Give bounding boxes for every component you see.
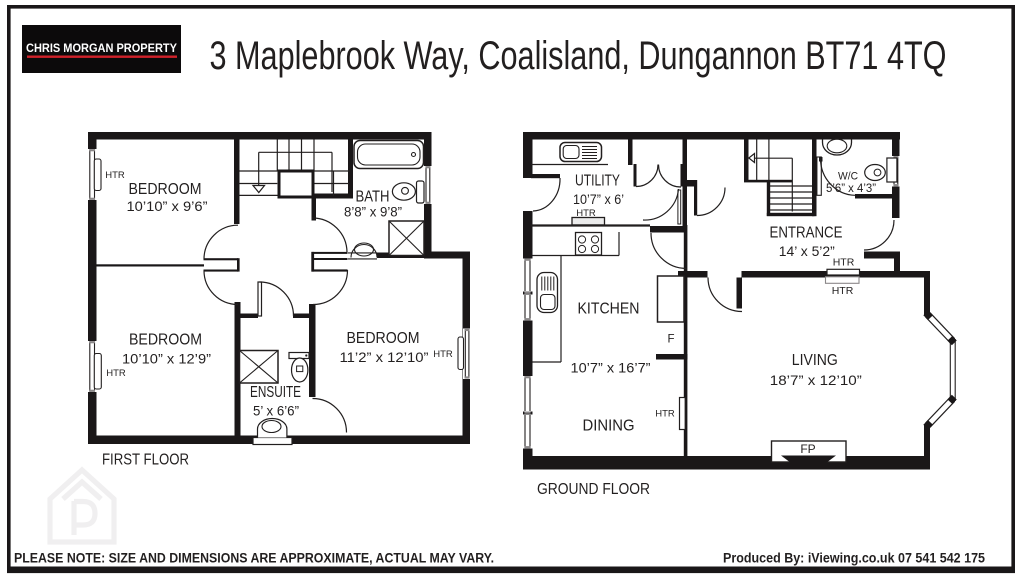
svg-text:10’7” x 16’7”: 10’7” x 16’7” xyxy=(571,360,651,376)
svg-text:HTR: HTR xyxy=(655,409,675,420)
svg-text:10’7” x 6’: 10’7” x 6’ xyxy=(573,191,624,207)
svg-text:DINING: DINING xyxy=(583,418,635,435)
svg-text:UTILITY: UTILITY xyxy=(575,173,620,190)
svg-text:8’8” x 9’8”: 8’8” x 9’8” xyxy=(344,204,402,220)
svg-text:CHRIS MORGAN PROPERTY: CHRIS MORGAN PROPERTY xyxy=(26,41,178,55)
svg-text:11’2” x 12’10”: 11’2” x 12’10” xyxy=(340,349,429,365)
svg-text:HTR: HTR xyxy=(576,208,596,219)
svg-text:W/C: W/C xyxy=(838,171,858,183)
svg-text:FP: FP xyxy=(800,442,815,456)
svg-text:F: F xyxy=(667,334,674,346)
svg-text:ENTRANCE: ENTRANCE xyxy=(770,225,843,242)
svg-text:5’6” x 4’3”: 5’6” x 4’3” xyxy=(826,183,876,195)
svg-text:LIVING: LIVING xyxy=(792,352,838,369)
svg-text:HTR: HTR xyxy=(106,368,126,379)
svg-text:HTR: HTR xyxy=(833,257,855,269)
svg-text:HTR: HTR xyxy=(433,349,453,360)
svg-text:3 Maplebrook Way, Coalisland,: 3 Maplebrook Way, Coalisland, Dungannon … xyxy=(210,34,947,78)
svg-text:18’7” x 12’10”: 18’7” x 12’10” xyxy=(770,372,862,388)
svg-text:ENSUITE: ENSUITE xyxy=(250,384,301,401)
svg-text:HTR: HTR xyxy=(105,170,125,181)
svg-text:PLEASE NOTE: SIZE AND DIMENSIO: PLEASE NOTE: SIZE AND DIMENSIONS ARE APP… xyxy=(14,551,494,566)
svg-text:14’ x 5’2”: 14’ x 5’2” xyxy=(779,243,835,259)
svg-text:10’10” x 9’6”: 10’10” x 9’6” xyxy=(127,198,208,214)
svg-text:BEDROOM: BEDROOM xyxy=(347,330,420,347)
svg-text:BEDROOM: BEDROOM xyxy=(129,332,202,349)
svg-text:KITCHEN: KITCHEN xyxy=(578,301,640,318)
svg-text:FIRST FLOOR: FIRST FLOOR xyxy=(102,452,189,469)
svg-text:BEDROOM: BEDROOM xyxy=(129,181,202,198)
svg-text:5’ x 6’6”: 5’ x 6’6” xyxy=(253,403,299,419)
svg-text:Produced By: iViewing.co.uk 07: Produced By: iViewing.co.uk 07 541 542 1… xyxy=(723,551,985,566)
svg-text:10’10” x 12’9”: 10’10” x 12’9” xyxy=(122,351,211,367)
svg-text:HTR: HTR xyxy=(832,285,854,297)
svg-text:GROUND FLOOR: GROUND FLOOR xyxy=(537,481,650,498)
